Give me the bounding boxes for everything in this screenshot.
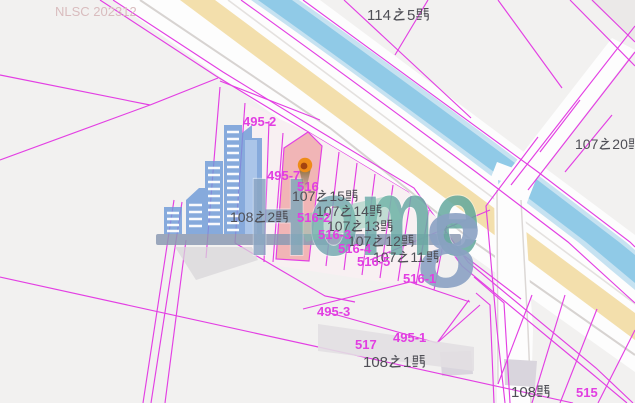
svg-text:8: 8: [419, 192, 478, 310]
svg-text:515: 515: [576, 385, 598, 400]
svg-text:11: 11: [410, 249, 425, 265]
svg-text:1: 1: [403, 354, 411, 371]
svg-text:15: 15: [329, 188, 345, 204]
svg-text:495-7: 495-7: [267, 168, 300, 183]
svg-text:14: 14: [353, 203, 369, 219]
svg-text:20: 20: [612, 136, 628, 152]
svg-text:495-1: 495-1: [393, 330, 426, 345]
svg-text:516-5: 516-5: [357, 254, 390, 269]
svg-text:516-3: 516-3: [318, 227, 351, 242]
svg-text:12: 12: [385, 233, 401, 249]
svg-text:NLSC 202312: NLSC 202312: [55, 4, 137, 19]
svg-text:5: 5: [407, 7, 415, 24]
svg-text:2: 2: [267, 209, 275, 225]
svg-text:516-1: 516-1: [403, 271, 436, 286]
svg-text:108: 108: [511, 384, 536, 401]
svg-text:495-2: 495-2: [243, 114, 276, 129]
svg-text:108: 108: [363, 354, 388, 371]
svg-text:516-2: 516-2: [297, 210, 330, 225]
svg-text:495-3: 495-3: [317, 304, 350, 319]
svg-text:114: 114: [367, 7, 391, 24]
svg-text:517: 517: [355, 337, 377, 352]
svg-text:13: 13: [364, 218, 380, 234]
svg-text:107: 107: [575, 136, 599, 152]
svg-text:108: 108: [230, 209, 254, 225]
